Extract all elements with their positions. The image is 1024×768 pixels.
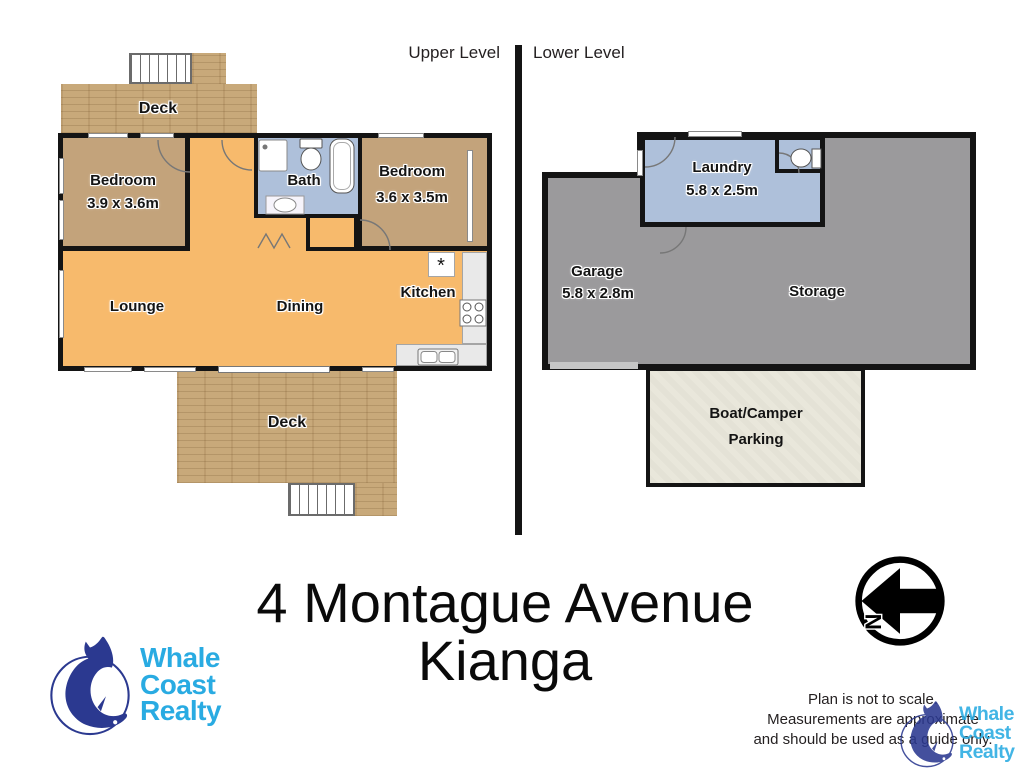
kitchen-counter-right [462, 252, 487, 344]
dining-label: Dining [277, 299, 324, 316]
window-wall-bedroom2 [467, 150, 473, 242]
lounge-label: Lounge [110, 299, 164, 316]
window [59, 270, 64, 338]
window [140, 133, 174, 138]
logo-word-3: Realty [959, 743, 1015, 762]
logo-word-1: Whale [140, 645, 221, 672]
whale-icon [898, 700, 956, 768]
agency-logo: Whale Coast Realty [48, 634, 221, 740]
whale-body [910, 701, 951, 762]
whale-body [65, 637, 127, 728]
kitchen-label: Kitchen [400, 285, 455, 302]
north-compass: N [853, 554, 947, 648]
deck-bottom-label: Deck [268, 414, 306, 432]
window [144, 367, 196, 372]
sliding-door [218, 366, 330, 373]
level-divider [515, 45, 522, 535]
upper-level-label: Upper Level [400, 43, 500, 63]
garage-door [550, 362, 638, 369]
window [59, 158, 64, 194]
kitchen-counter-bottom [396, 344, 487, 366]
parking-label-2: Parking [728, 432, 783, 449]
boat-camper-parking [646, 367, 865, 487]
window [688, 131, 742, 137]
appliance-marker: * [437, 255, 445, 277]
room-wc [775, 135, 825, 173]
window [88, 133, 128, 138]
whale-eye [113, 720, 117, 724]
agency-name-small: Whale Coast Realty [959, 700, 1015, 762]
address-line-1: 4 Montague Avenue [195, 574, 815, 632]
bedroom2-dims: 3.6 x 3.5m [376, 190, 448, 207]
property-address: 4 Montague Avenue Kianga [195, 574, 815, 690]
window [378, 133, 424, 138]
wall-segment [308, 247, 358, 251]
whale-fin [932, 741, 938, 751]
bath-label: Bath [287, 173, 320, 190]
garage-dims: 5.8 x 2.8m [562, 286, 634, 303]
upper-top-landing [192, 53, 226, 84]
laundry-dims: 5.8 x 2.5m [686, 183, 758, 200]
upper-bottom-stairs [288, 483, 355, 516]
storage-label: Storage [789, 284, 845, 301]
window [637, 150, 643, 176]
upper-top-stairs [129, 53, 192, 84]
upper-bottom-landing [355, 483, 397, 516]
window [59, 200, 64, 240]
floorplan-page: Upper Level Lower Level Deck * Deck Bedr… [0, 0, 1024, 768]
bedroom1-dims: 3.9 x 3.6m [87, 196, 159, 213]
agency-logo-small: Whale Coast Realty [898, 700, 1015, 768]
bedroom1-name: Bedroom [90, 173, 156, 190]
door-arc-laundry-garage [660, 227, 686, 253]
whale-eye [943, 757, 946, 760]
agency-name: Whale Coast Realty [140, 634, 221, 725]
garage-name: Garage [571, 264, 623, 281]
bedroom2-name: Bedroom [379, 164, 445, 181]
compass-arrow-shaft [900, 589, 939, 613]
window [84, 367, 132, 372]
address-line-2: Kianga [195, 632, 815, 690]
compass-north-letter: N [861, 614, 886, 630]
logo-word-3: Realty [140, 698, 221, 725]
deck-top-label: Deck [139, 100, 177, 118]
whale-fin [98, 696, 106, 711]
laundry-name: Laundry [692, 160, 751, 177]
lower-level-label: Lower Level [533, 43, 625, 63]
window [362, 367, 394, 372]
whale-icon [48, 634, 132, 740]
parking-label-1: Boat/Camper [709, 406, 802, 423]
